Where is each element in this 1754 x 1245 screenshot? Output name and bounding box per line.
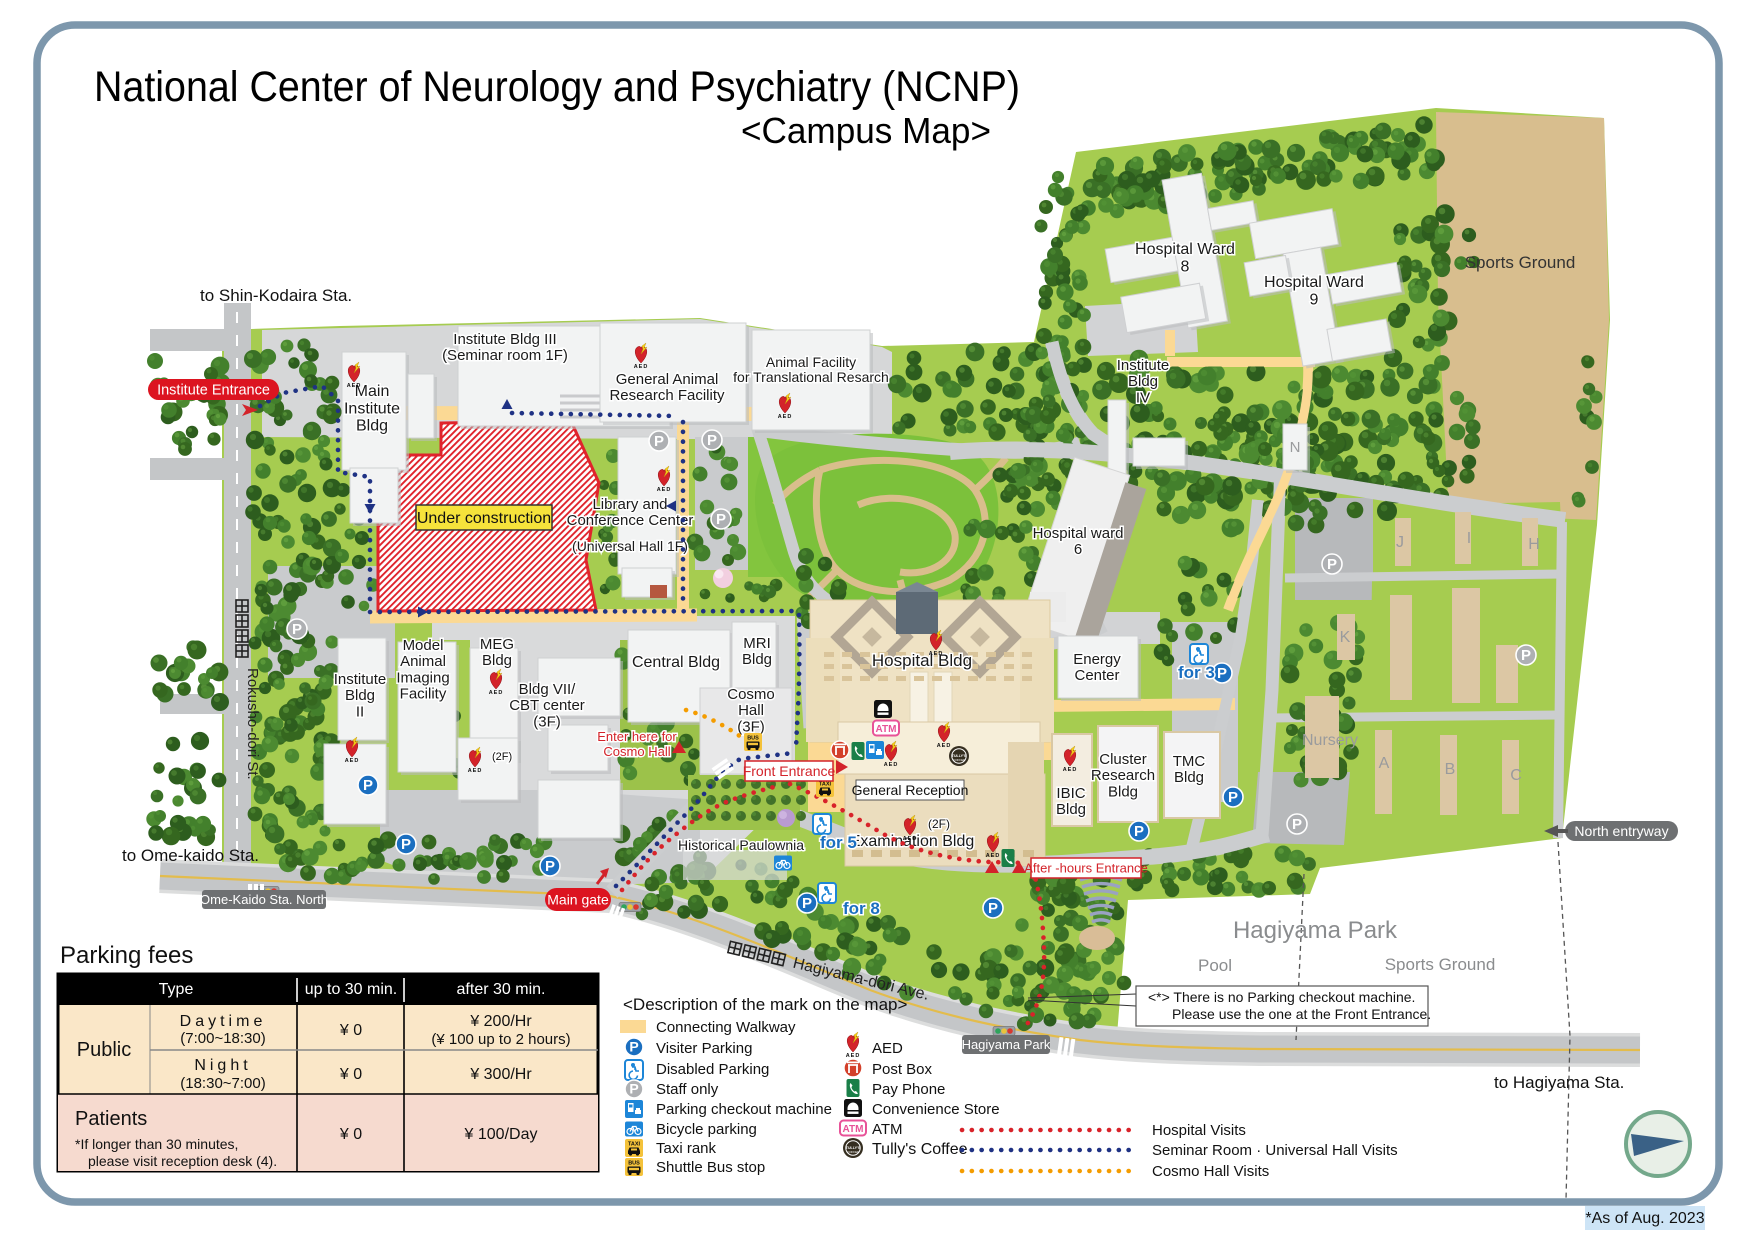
- svg-text:(Universal Hall 1F): (Universal Hall 1F): [572, 538, 688, 554]
- svg-text:Type: Type: [159, 981, 194, 998]
- svg-text:(2F): (2F): [928, 817, 950, 831]
- svg-text:¥ 300/Hr: ¥ 300/Hr: [469, 1066, 532, 1083]
- svg-text:after 30 min.: after 30 min.: [457, 981, 546, 998]
- svg-text:Hagiyama Park: Hagiyama Park: [1233, 917, 1398, 944]
- svg-text:AED: AED: [903, 836, 918, 842]
- svg-text:for 8: for 8: [843, 899, 880, 918]
- svg-text:C: C: [1510, 767, 1522, 784]
- svg-text:Pay Phone: Pay Phone: [872, 1081, 945, 1098]
- svg-text:Bicycle parking: Bicycle parking: [656, 1121, 757, 1138]
- svg-text:<*> There is no Parking checko: <*> There is no Parking checkout machine…: [1148, 989, 1415, 1005]
- svg-text:for 3: for 3: [1178, 663, 1215, 682]
- svg-text:P: P: [654, 433, 664, 450]
- svg-text:to Hagiyama Sta.: to Hagiyama Sta.: [1494, 1073, 1624, 1092]
- svg-text:P: P: [1228, 789, 1238, 806]
- svg-text:Taxi rank: Taxi rank: [656, 1140, 717, 1157]
- svg-text:TAXI: TAXI: [628, 1142, 641, 1148]
- svg-text:AED: AED: [489, 690, 504, 696]
- svg-text:Tully's Coffee: Tully's Coffee: [872, 1141, 968, 1158]
- svg-text:Pool: Pool: [1198, 956, 1232, 975]
- svg-text:ATM: ATM: [872, 1121, 903, 1138]
- svg-text:¥ 200/Hr: ¥ 200/Hr: [469, 1013, 532, 1030]
- svg-text:After -hours Entrance: After -hours Entrance: [1024, 861, 1148, 876]
- svg-text:ATM: ATM: [843, 1124, 864, 1135]
- svg-text:AED: AED: [347, 383, 362, 389]
- svg-text:P: P: [401, 836, 411, 853]
- svg-text:EnergyCenter: EnergyCenter: [1073, 651, 1121, 684]
- svg-text:Front Entrance: Front Entrance: [743, 763, 836, 779]
- svg-text:H: H: [1528, 536, 1540, 553]
- svg-text:Connecting Walkway: Connecting Walkway: [656, 1019, 796, 1036]
- svg-text:AED: AED: [1063, 767, 1078, 773]
- svg-text:BUS: BUS: [747, 736, 759, 742]
- svg-text:AED: AED: [937, 743, 952, 749]
- svg-text:J: J: [1396, 534, 1404, 551]
- svg-text:Cosmo Hall Visits: Cosmo Hall Visits: [1152, 1163, 1269, 1180]
- svg-text:Main gate: Main gate: [547, 892, 609, 908]
- svg-text:Visiter Parking: Visiter Parking: [656, 1040, 752, 1057]
- svg-text:Convenience Store: Convenience Store: [872, 1101, 1000, 1118]
- svg-text:P: P: [1292, 816, 1302, 833]
- svg-text:Parking checkout machine: Parking checkout machine: [656, 1101, 832, 1118]
- svg-text:AED: AED: [872, 1040, 903, 1057]
- svg-text:AED: AED: [634, 364, 649, 370]
- svg-text:ModelAnimalImagingFacility: ModelAnimalImagingFacility: [396, 637, 449, 703]
- svg-text:(18:30~7:00): (18:30~7:00): [180, 1075, 265, 1092]
- svg-text:MEGBldg: MEGBldg: [480, 636, 514, 669]
- svg-text:please visit reception desk (4: please visit reception desk (4).: [88, 1153, 277, 1169]
- svg-text:to Shin-Kodaira Sta.: to Shin-Kodaira Sta.: [200, 286, 352, 305]
- svg-text:Disabled Parking: Disabled Parking: [656, 1061, 769, 1078]
- svg-text:¥ 0: ¥ 0: [339, 1022, 362, 1039]
- svg-text:B: B: [1445, 761, 1456, 778]
- svg-text:<Description of the mark on th: <Description of the mark on the map>: [623, 995, 907, 1014]
- svg-text:AED: AED: [884, 762, 899, 768]
- svg-text:Central Bldg: Central Bldg: [632, 654, 720, 671]
- svg-text:MRIBldg: MRIBldg: [742, 635, 772, 668]
- svg-text:Enter here for: Enter here for: [597, 729, 677, 744]
- svg-text:up to 30 min.: up to 30 min.: [305, 981, 398, 998]
- svg-text:Shuttle Bus stop: Shuttle Bus stop: [656, 1159, 765, 1176]
- svg-text:Institute Bldg III(Seminar roo: Institute Bldg III(Seminar room 1F): [442, 331, 568, 364]
- svg-text:P: P: [629, 1081, 638, 1097]
- svg-text:Night: Night: [194, 1057, 251, 1074]
- svg-text:K: K: [1340, 629, 1351, 646]
- svg-text:P: P: [1217, 665, 1227, 682]
- svg-text:Daytime: Daytime: [180, 1013, 267, 1030]
- svg-text:P: P: [1327, 556, 1337, 573]
- svg-text:¥ 0: ¥ 0: [339, 1126, 362, 1143]
- svg-text:COFFEE: COFFEE: [953, 758, 965, 762]
- svg-text:Hospital Visits: Hospital Visits: [1152, 1122, 1246, 1139]
- svg-text:*If longer than 30 minutes,: *If longer than 30 minutes,: [75, 1136, 238, 1152]
- svg-text:Staff only: Staff only: [656, 1081, 719, 1098]
- svg-text:ATM: ATM: [876, 724, 897, 735]
- svg-text:Post Box: Post Box: [872, 1061, 933, 1078]
- svg-text:Public: Public: [77, 1039, 131, 1061]
- svg-text:Institute Entrance: Institute Entrance: [157, 383, 270, 399]
- svg-text:N: N: [1290, 439, 1301, 456]
- svg-text:A: A: [1379, 755, 1390, 772]
- svg-text:I: I: [1467, 530, 1471, 547]
- svg-text:P: P: [292, 621, 302, 638]
- svg-text:Seminar Room · Universal Hall: Seminar Room · Universal Hall Visits: [1152, 1142, 1398, 1159]
- svg-text:P: P: [545, 858, 555, 875]
- svg-text:Hospital Bldg: Hospital Bldg: [872, 651, 972, 670]
- svg-text:AED: AED: [778, 414, 793, 420]
- svg-text:Sports Ground: Sports Ground: [1385, 955, 1496, 974]
- svg-text:AED: AED: [929, 651, 944, 657]
- svg-text:P: P: [363, 777, 373, 794]
- svg-text:P: P: [1521, 647, 1531, 664]
- svg-text:¥ 100/Day: ¥ 100/Day: [464, 1126, 538, 1143]
- svg-text:P: P: [988, 900, 998, 917]
- svg-text:(2F): (2F): [492, 751, 512, 763]
- svg-text:National Center of Neurology a: National Center of Neurology and Psychia…: [94, 63, 1020, 111]
- svg-text:<Campus Map>: <Campus Map>: [741, 110, 991, 151]
- svg-text:TAXI: TAXI: [819, 782, 832, 788]
- svg-text:to Ome-kaido Sta.: to Ome-kaido Sta.: [122, 846, 259, 865]
- svg-text:Patients: Patients: [75, 1108, 147, 1130]
- svg-text:¥ 0: ¥ 0: [339, 1066, 362, 1083]
- svg-text:IBICBldg: IBICBldg: [1056, 785, 1086, 818]
- svg-text:P: P: [1134, 823, 1144, 840]
- svg-text:BUS: BUS: [628, 1161, 640, 1167]
- svg-text:Under construction: Under construction: [417, 510, 551, 527]
- svg-text:P: P: [802, 895, 812, 912]
- svg-text:*As of Aug. 2023: *As of Aug. 2023: [1585, 1210, 1704, 1227]
- svg-text:AED: AED: [468, 768, 483, 774]
- svg-text:AED: AED: [986, 853, 1001, 859]
- svg-text:(7:00~18:30): (7:00~18:30): [180, 1030, 265, 1047]
- svg-text:Nursery: Nursery: [1302, 732, 1358, 749]
- svg-text:for 5: for 5: [820, 833, 857, 852]
- svg-text:AED: AED: [657, 487, 672, 493]
- svg-text:Hagiyama Park: Hagiyama Park: [962, 1037, 1051, 1052]
- svg-text:COFFEE: COFFEE: [847, 1150, 859, 1154]
- svg-text:TMCBldg: TMCBldg: [1173, 753, 1206, 786]
- svg-text:P: P: [629, 1039, 638, 1055]
- svg-text:AED: AED: [345, 758, 360, 764]
- svg-text:P: P: [707, 432, 717, 449]
- svg-text:AED: AED: [846, 1053, 861, 1059]
- svg-text:Rokusho-dori St.: Rokusho-dori St.: [244, 668, 261, 780]
- svg-text:North entryway: North entryway: [1574, 823, 1668, 839]
- svg-text:P: P: [716, 511, 726, 528]
- svg-text:Please use the one at the Fron: Please use the one at the Front Entrance…: [1172, 1006, 1431, 1022]
- svg-text:Cosmo Hall: Cosmo Hall: [603, 744, 670, 759]
- svg-text:General Reception: General Reception: [852, 782, 969, 798]
- svg-text:Parking fees: Parking fees: [60, 942, 193, 969]
- svg-text:Historical Paulownia: Historical Paulownia: [678, 837, 804, 853]
- svg-text:(¥ 100 up to 2 hours): (¥ 100 up to 2 hours): [431, 1031, 570, 1048]
- svg-text:Ome-Kaido Sta. North: Ome-Kaido Sta. North: [200, 892, 328, 907]
- svg-text:Sports Ground: Sports Ground: [1465, 253, 1576, 272]
- svg-text:General AnimalResearch Facilit: General AnimalResearch Facility: [609, 371, 725, 404]
